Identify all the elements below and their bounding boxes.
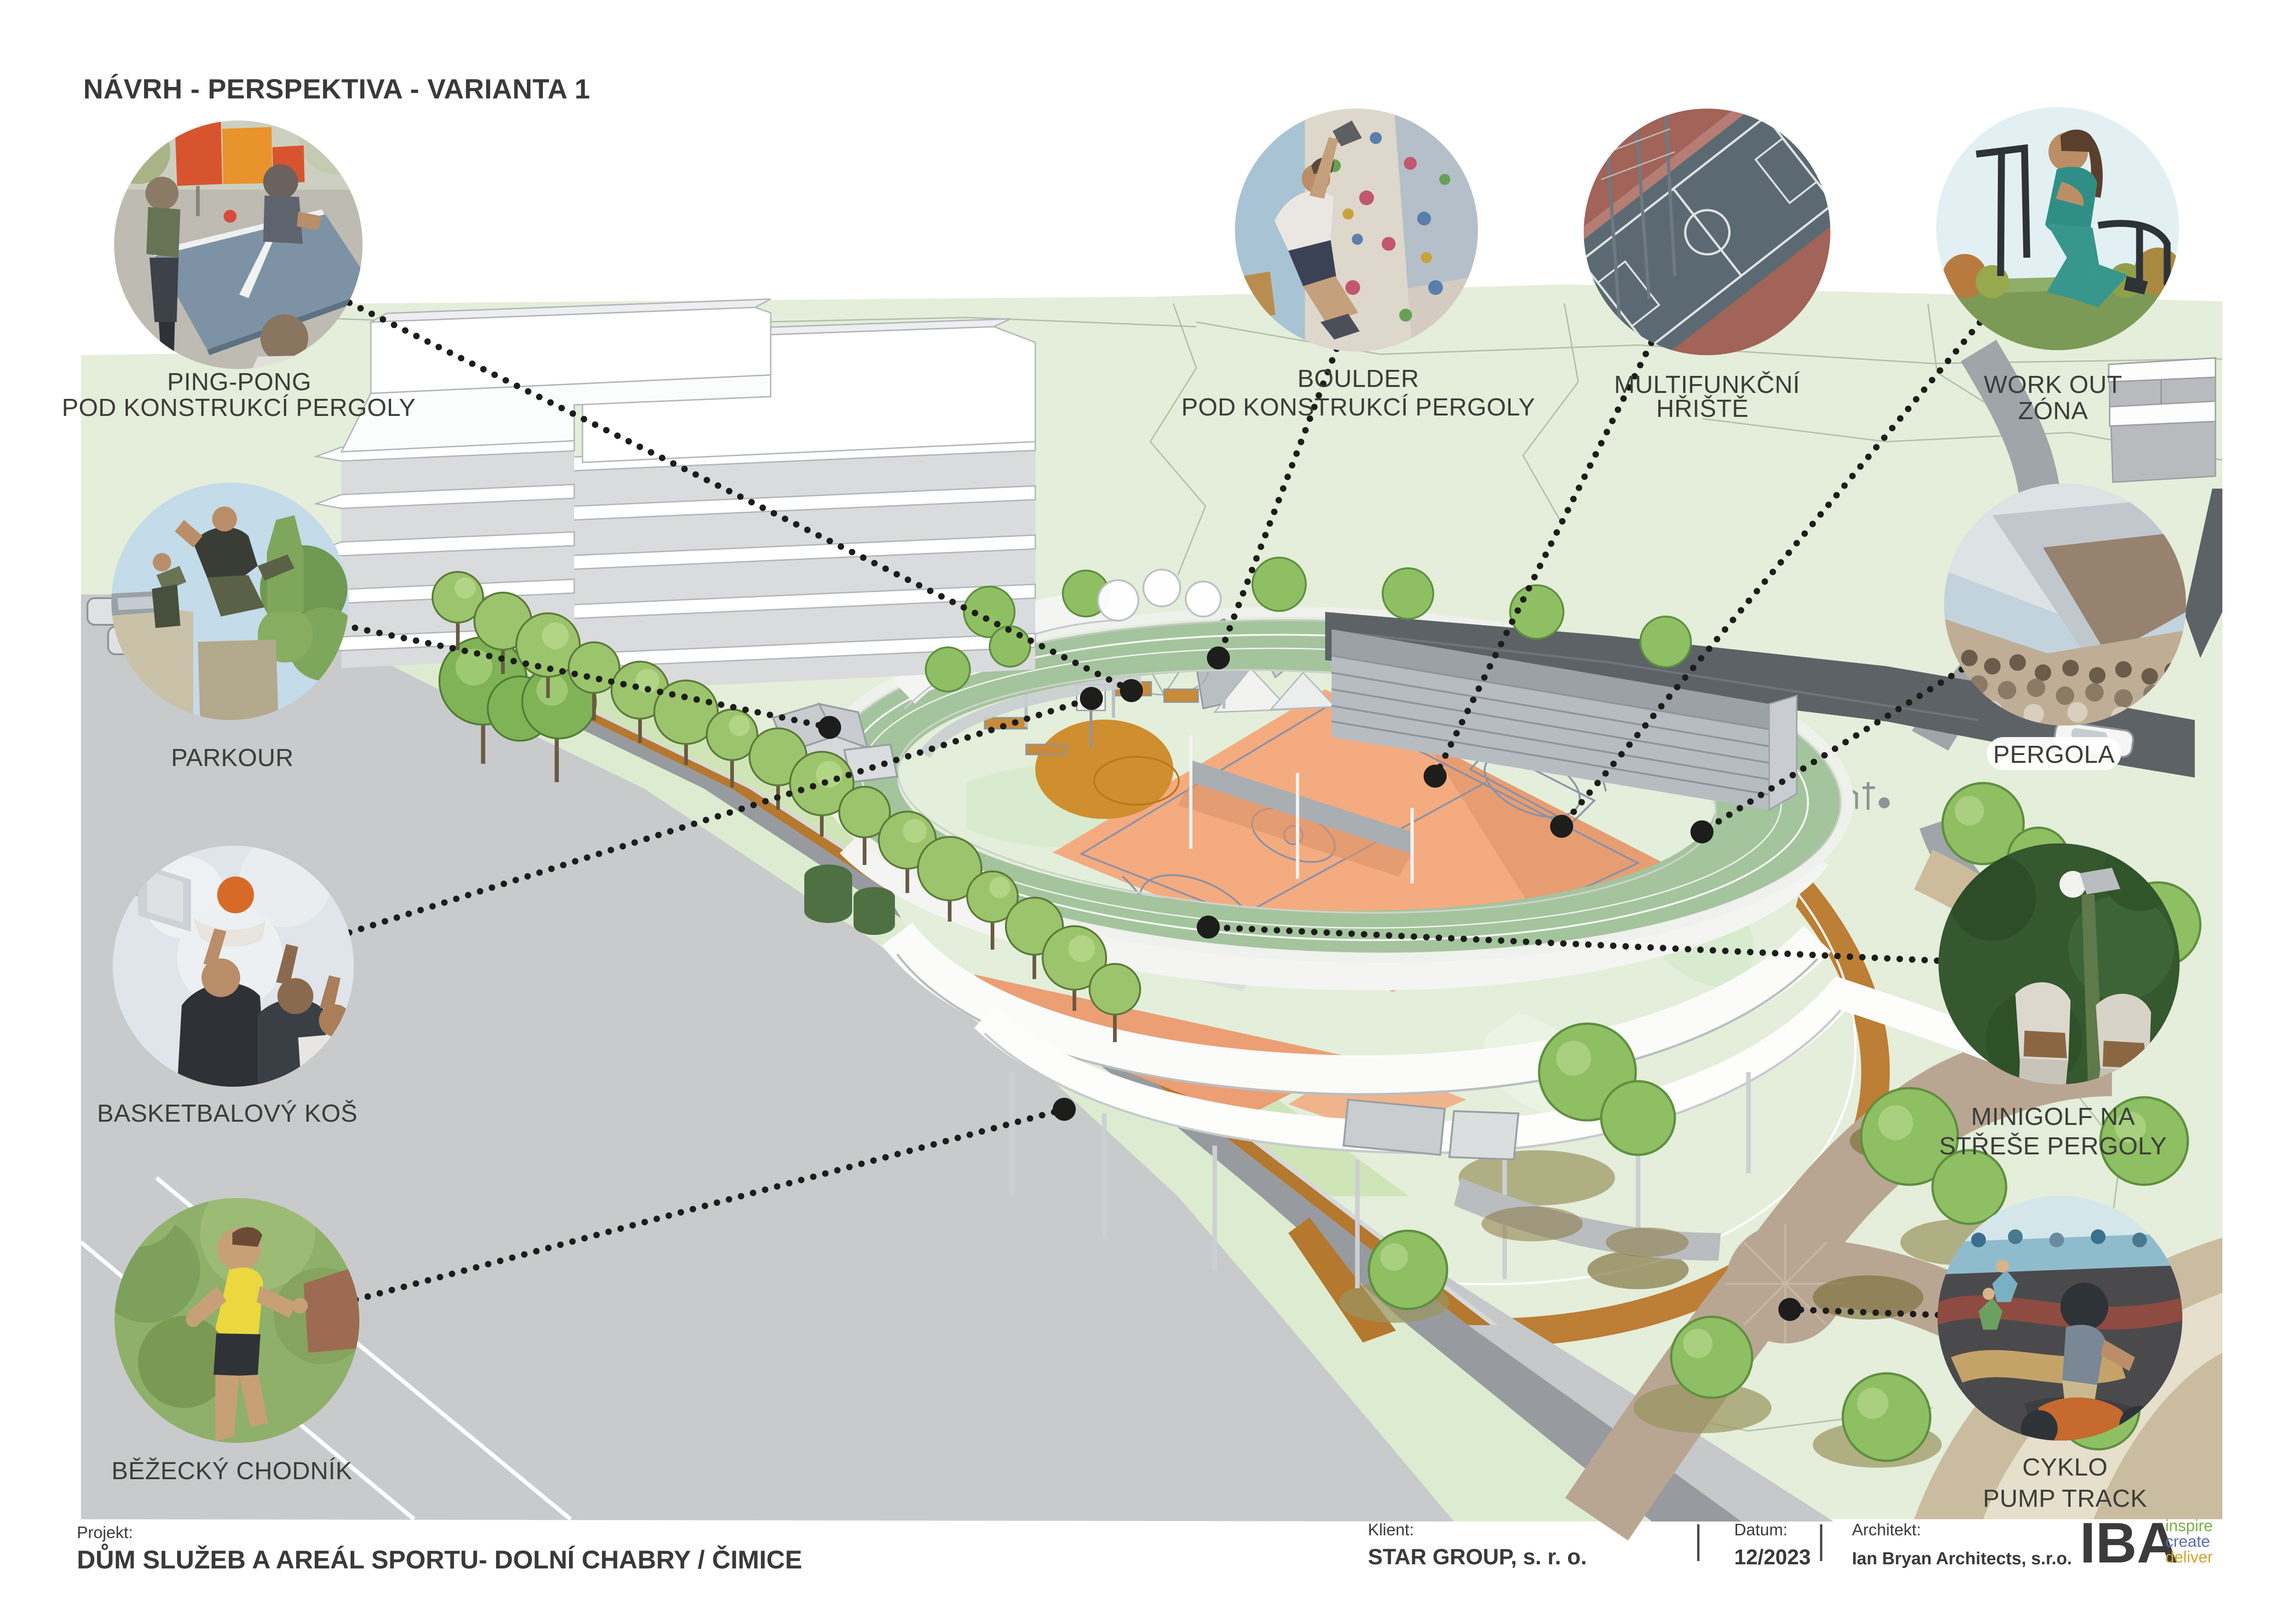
svg-text:IBA: IBA: [2080, 1511, 2178, 1575]
svg-text:Klient:: Klient:: [1368, 1520, 1414, 1539]
svg-text:WORK OUT: WORK OUT: [1984, 371, 2123, 398]
svg-text:CYKLO: CYKLO: [2022, 1453, 2108, 1481]
svg-text:MINIGOLF NA: MINIGOLF NA: [1971, 1103, 2135, 1130]
svg-text:PARKOUR: PARKOUR: [171, 744, 294, 772]
svg-text:BOULDER: BOULDER: [1298, 365, 1419, 392]
svg-text:PING-PONG: PING-PONG: [167, 368, 312, 396]
svg-text:STAR GROUP, s. r. o.: STAR GROUP, s. r. o.: [1368, 1545, 1587, 1569]
svg-text:MULTIFUNKČNÍ: MULTIFUNKČNÍ: [1614, 371, 1800, 398]
svg-text:BĚŽECKÝ CHODNÍK: BĚŽECKÝ CHODNÍK: [111, 1457, 352, 1485]
svg-text:ZÓNA: ZÓNA: [2018, 397, 2088, 425]
svg-text:STŘEŠE PERGOLY: STŘEŠE PERGOLY: [1939, 1132, 2167, 1160]
svg-text:BASKETBALOVÝ KOŠ: BASKETBALOVÝ KOŠ: [97, 1100, 358, 1127]
svg-text:NÁVRH - PERSPEKTIVA - VARIANTA: NÁVRH - PERSPEKTIVA - VARIANTA 1: [83, 74, 590, 104]
svg-text:DŮM SLUŽEB A AREÁL SPORTU- DOL: DŮM SLUŽEB A AREÁL SPORTU- DOLNÍ CHABRY …: [77, 1544, 802, 1574]
svg-text:HŘIŠTĚ: HŘIŠTĚ: [1656, 395, 1748, 422]
svg-text:PUMP TRACK: PUMP TRACK: [1983, 1485, 2147, 1512]
svg-text:Architekt:: Architekt:: [1852, 1520, 1921, 1539]
svg-text:PERGOLA: PERGOLA: [1993, 741, 2115, 768]
svg-text:POD KONSTRUKCÍ PERGOLY: POD KONSTRUKCÍ PERGOLY: [62, 394, 415, 421]
svg-text:Ian Bryan Architects, s.r.o.: Ian Bryan Architects, s.r.o.: [1852, 1549, 2072, 1568]
svg-text:Datum:: Datum:: [1734, 1520, 1788, 1539]
svg-text:Projekt:: Projekt:: [77, 1523, 133, 1542]
svg-text:POD KONSTRUKCÍ PERGOLY: POD KONSTRUKCÍ PERGOLY: [1181, 393, 1535, 421]
svg-text:deliver: deliver: [2165, 1548, 2213, 1566]
svg-text:12/2023: 12/2023: [1734, 1545, 1811, 1569]
